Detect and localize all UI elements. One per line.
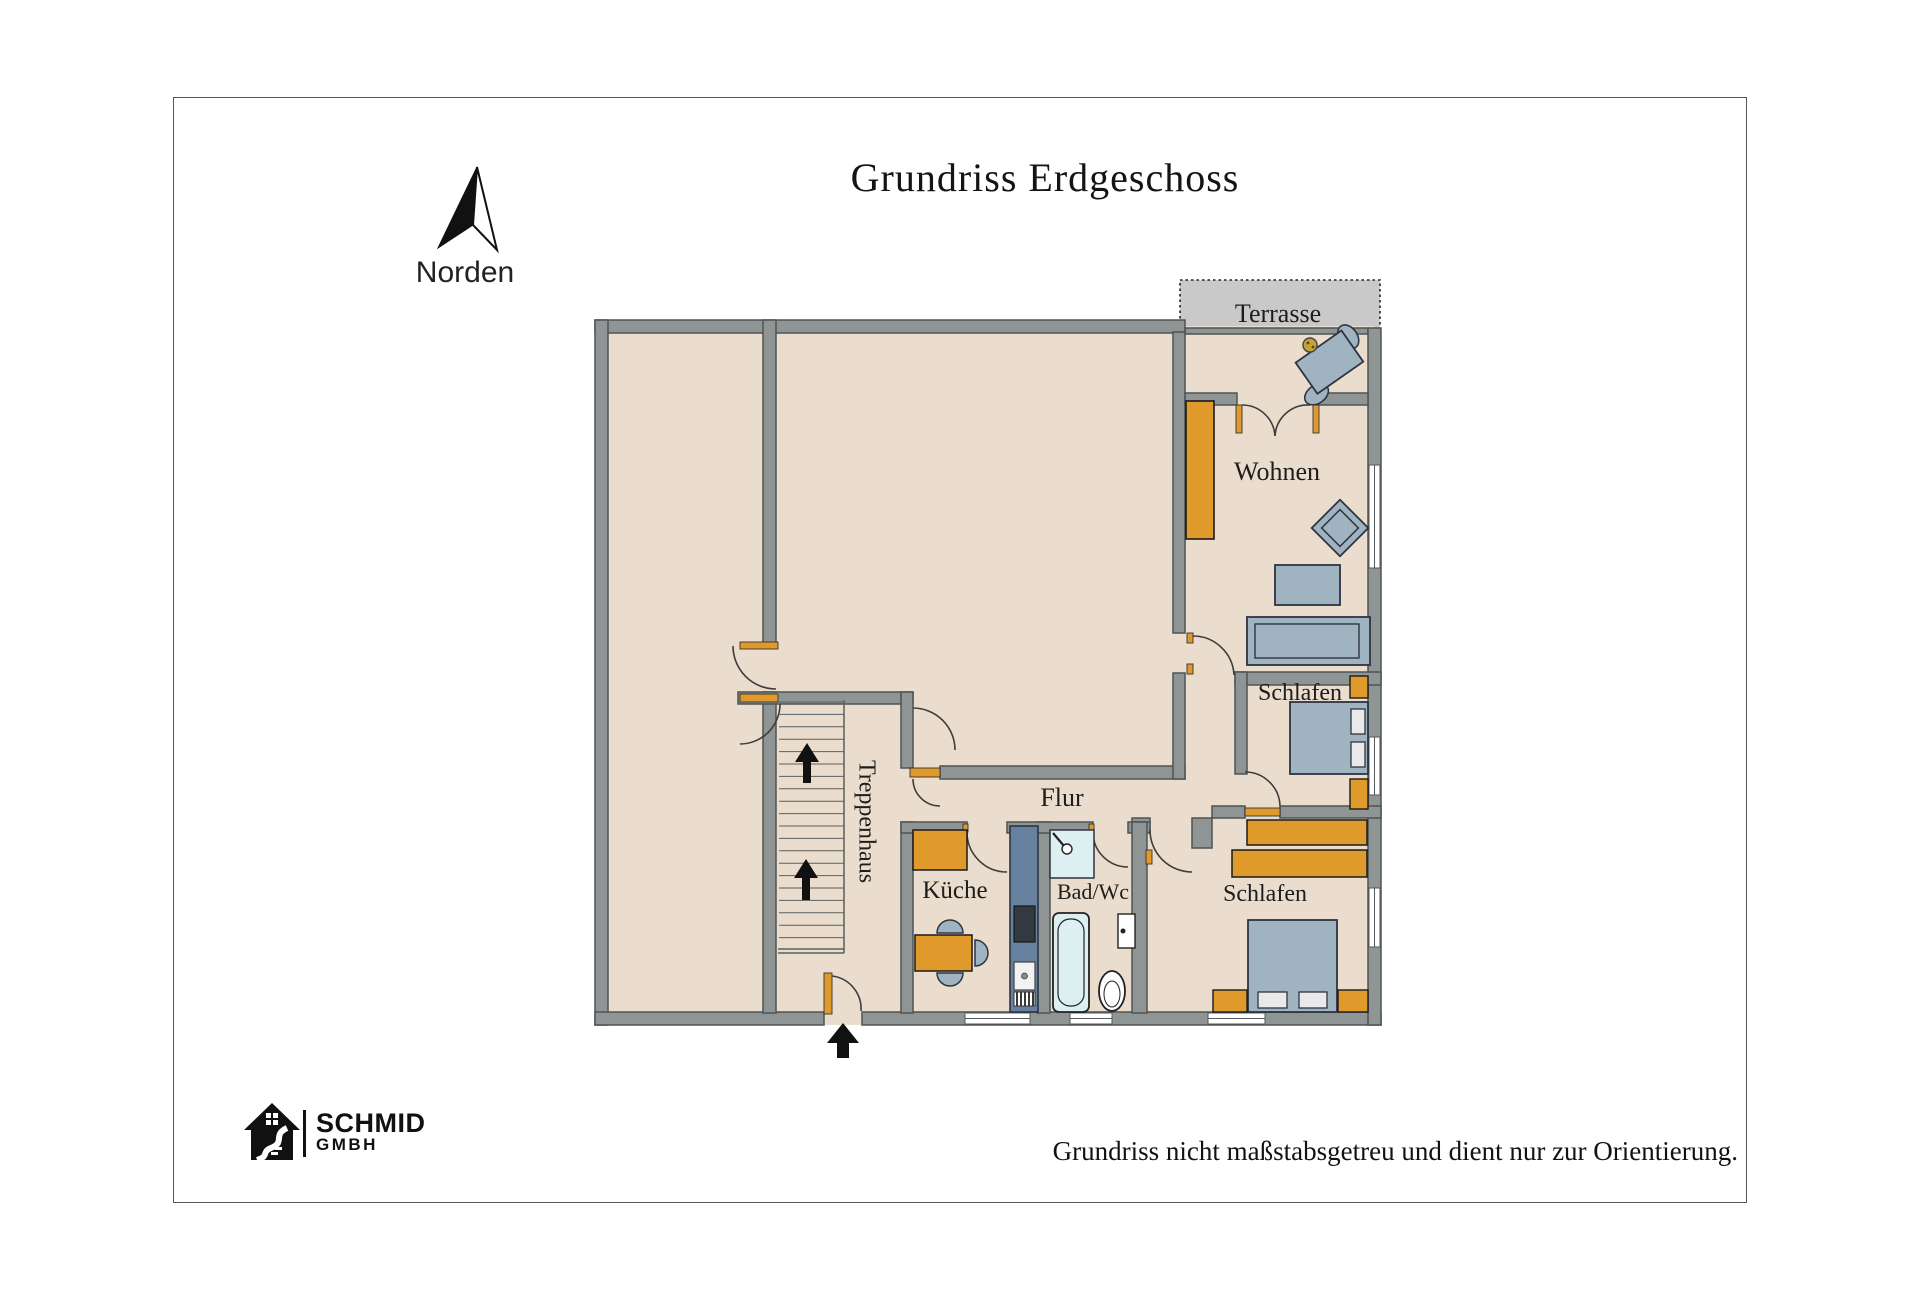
north-arrow-icon	[438, 167, 497, 250]
room-label-wohnen: Wohnen	[1177, 457, 1377, 487]
room-label-bad: Bad/Wc	[1043, 879, 1143, 905]
logo-divider	[303, 1110, 306, 1157]
logo-brand-suffix: GMBH	[316, 1135, 378, 1155]
house-icon	[244, 1103, 300, 1160]
room-label-schlafen-unten: Schlafen	[1165, 881, 1365, 908]
floorplan-page: Grundriss Erdgeschoss	[0, 0, 1920, 1300]
toilet	[1099, 971, 1125, 1011]
disclaimer-text: Grundriss nicht maßstabsgetreu und dient…	[898, 1136, 1738, 1167]
room-label-flur: Flur	[1012, 783, 1112, 813]
entrance-arrow-icon	[827, 1023, 859, 1058]
stove	[1014, 906, 1035, 942]
room-label-terrasse: Terrasse	[1178, 299, 1378, 329]
plant-icon	[1303, 338, 1317, 352]
room-label-kueche: Küche	[905, 877, 1005, 905]
compass-label: Norden	[365, 256, 565, 290]
room-label-treppenhaus: Treppenhaus	[853, 722, 880, 922]
room-label-schlafen-oben: Schlafen	[1200, 680, 1400, 707]
